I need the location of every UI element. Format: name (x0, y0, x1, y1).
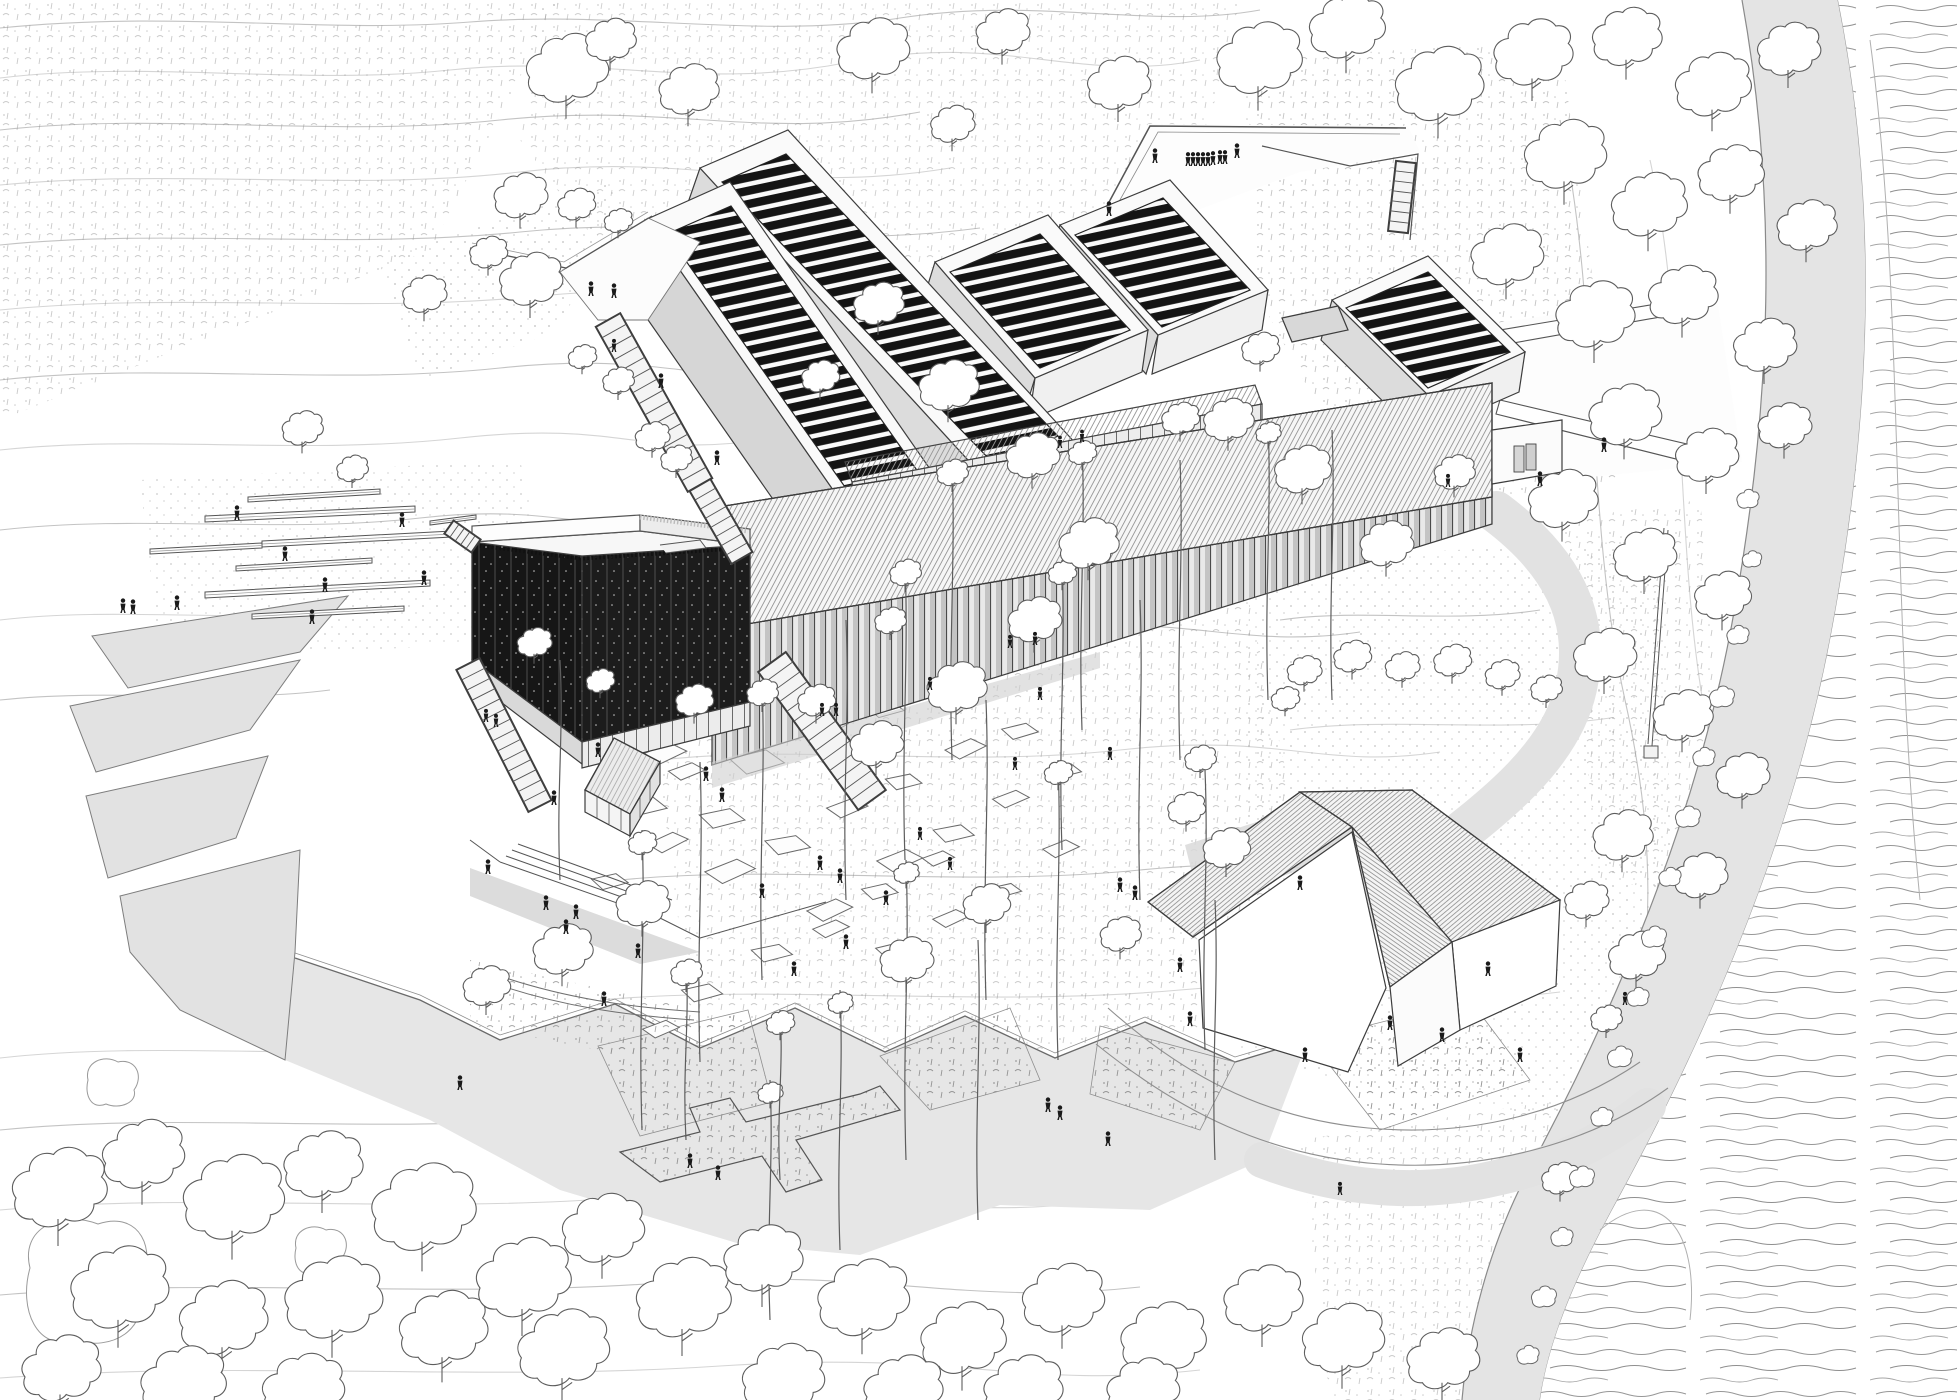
site-plan-illustration (0, 0, 1957, 1400)
architectural-aerial-drawing (0, 0, 1957, 1400)
